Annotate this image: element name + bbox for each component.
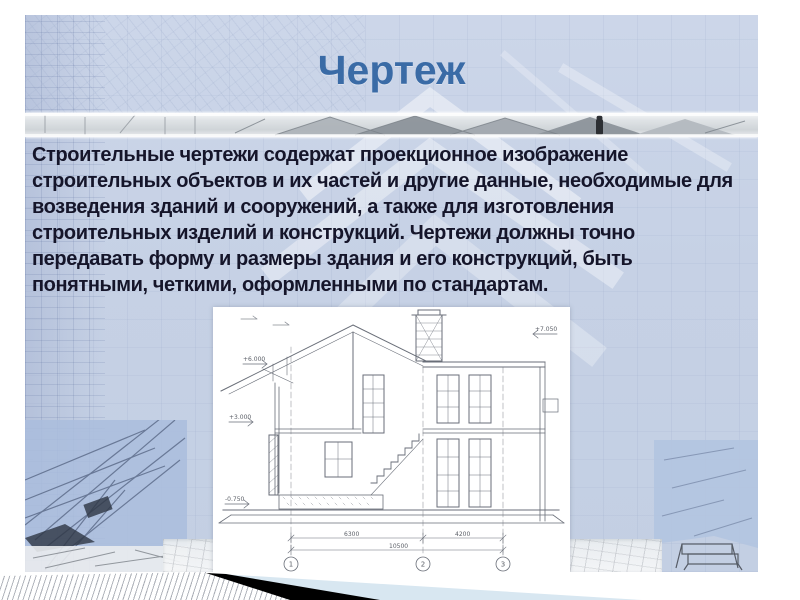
presentation-slide-canvas: Чертеж Строительные чертежи содержат про… <box>0 0 800 600</box>
slide: Чертеж Строительные чертежи содержат про… <box>25 15 758 572</box>
axis-bubble-2: 2 <box>421 561 425 569</box>
house-section-drawing: 6300 4200 10500 +6.000 +3.000 -0.750 +7.… <box>213 307 570 572</box>
dim-right-span: 4200 <box>455 531 470 538</box>
blueprint-collage-bottom-right <box>654 440 758 572</box>
axis-bubble-1: 1 <box>289 561 293 569</box>
house-section-drawing-svg: 6300 4200 10500 +6.000 +3.000 -0.750 +7.… <box>213 307 570 572</box>
dim-total-span: 10500 <box>389 543 408 550</box>
elevation-left-upper: +6.000 <box>243 356 265 363</box>
truss-photo-strip <box>25 113 758 137</box>
dim-left-span: 6300 <box>344 531 359 538</box>
axis-bubble-3: 3 <box>501 561 505 569</box>
footer-decoration <box>0 572 800 600</box>
elevation-left-lower: -0.750 <box>225 496 245 503</box>
truss-photo-strip-graphic <box>25 113 758 137</box>
elevation-right-top: +7.050 <box>535 326 557 333</box>
slide-title: Чертеж <box>25 47 758 94</box>
slide-body-text: Строительные чертежи содержат проекционн… <box>32 142 749 298</box>
elevation-left-mid: +3.000 <box>229 414 251 421</box>
